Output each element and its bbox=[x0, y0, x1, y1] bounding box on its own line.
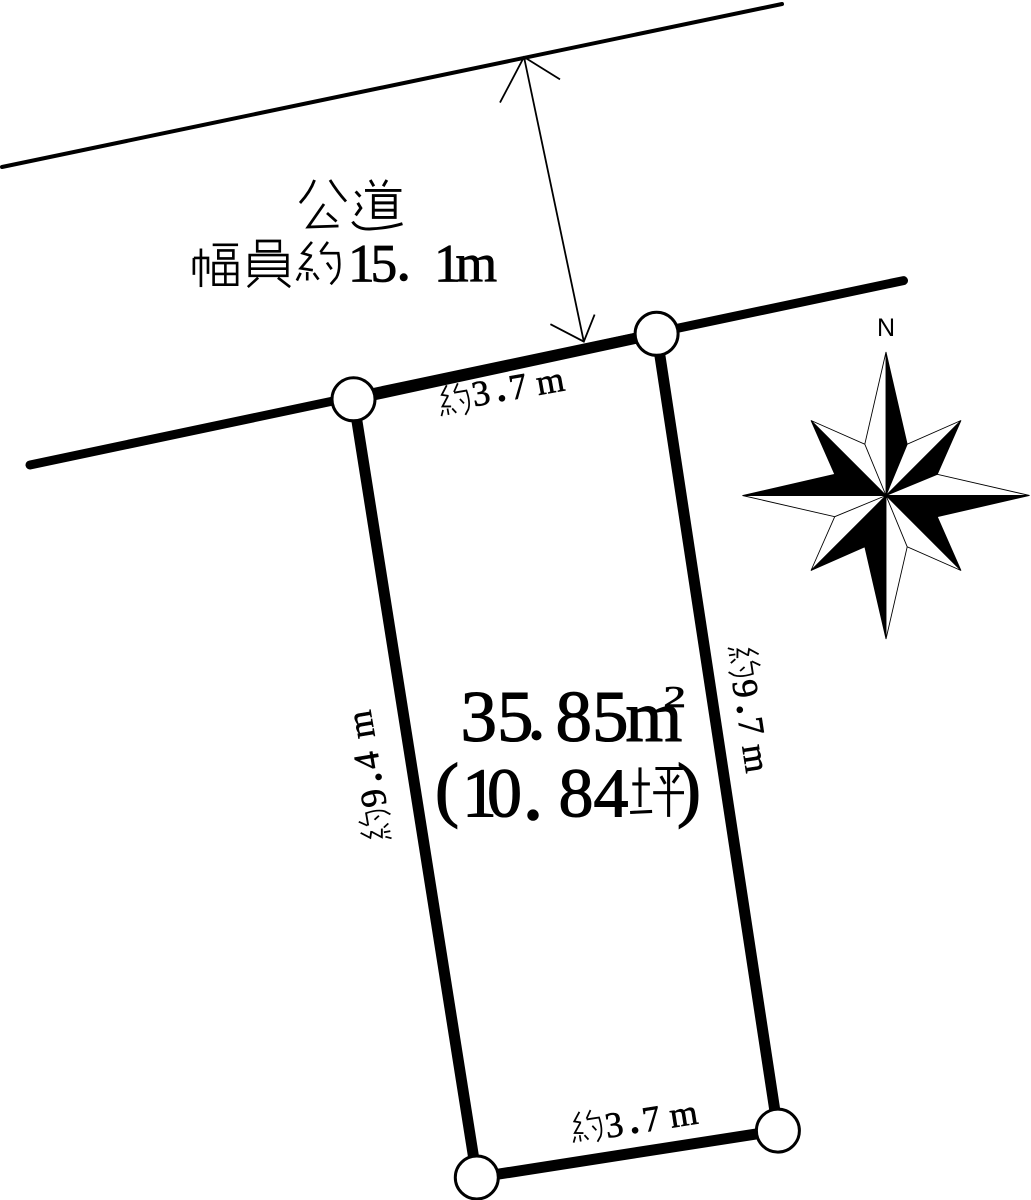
svg-text:2: 2 bbox=[664, 681, 686, 715]
svg-text:5: 5 bbox=[371, 233, 398, 293]
svg-text:84: 84 bbox=[559, 756, 629, 833]
svg-text:m: m bbox=[456, 233, 498, 293]
svg-text:m: m bbox=[734, 741, 778, 775]
svg-text:35: 35 bbox=[461, 676, 534, 757]
svg-text:85: 85 bbox=[556, 676, 629, 757]
svg-text:N: N bbox=[877, 314, 895, 342]
svg-text:0: 0 bbox=[487, 756, 522, 833]
svg-text:): ) bbox=[677, 749, 701, 829]
svg-text:(: ( bbox=[435, 749, 459, 829]
